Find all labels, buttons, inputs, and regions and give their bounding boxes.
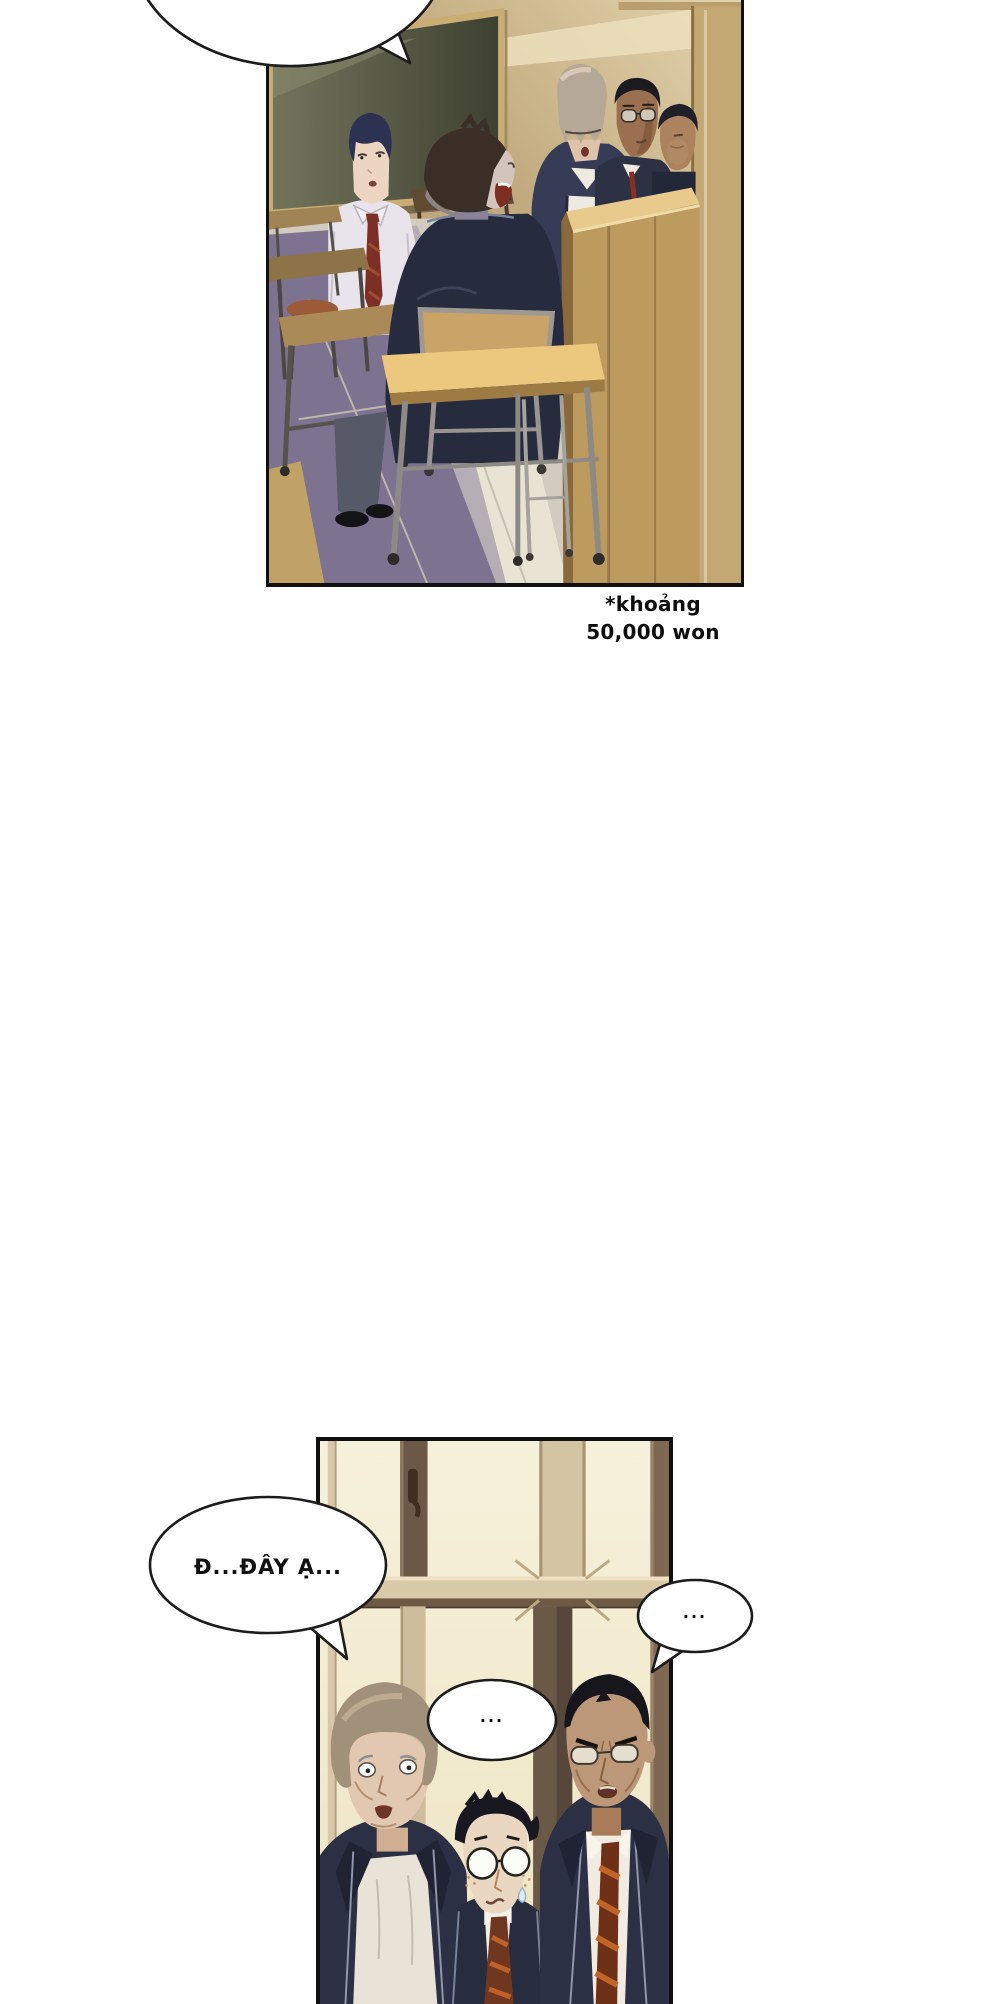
classroom-illustration — [269, 0, 741, 583]
caption-line-2: 50,000 won — [545, 618, 761, 646]
caption-line-1: *khoảng — [545, 590, 761, 618]
speech-bubble-ellipsis-right-text: ... — [683, 1603, 707, 1622]
window-illustration — [320, 1441, 669, 2004]
caption-note: *khoảng 50,000 won — [545, 590, 761, 646]
webtoon-page: { "page": { "background": "#ffffff" }, "… — [0, 0, 1000, 2000]
panel-classroom — [266, 0, 744, 587]
panel-window — [316, 1437, 673, 2004]
